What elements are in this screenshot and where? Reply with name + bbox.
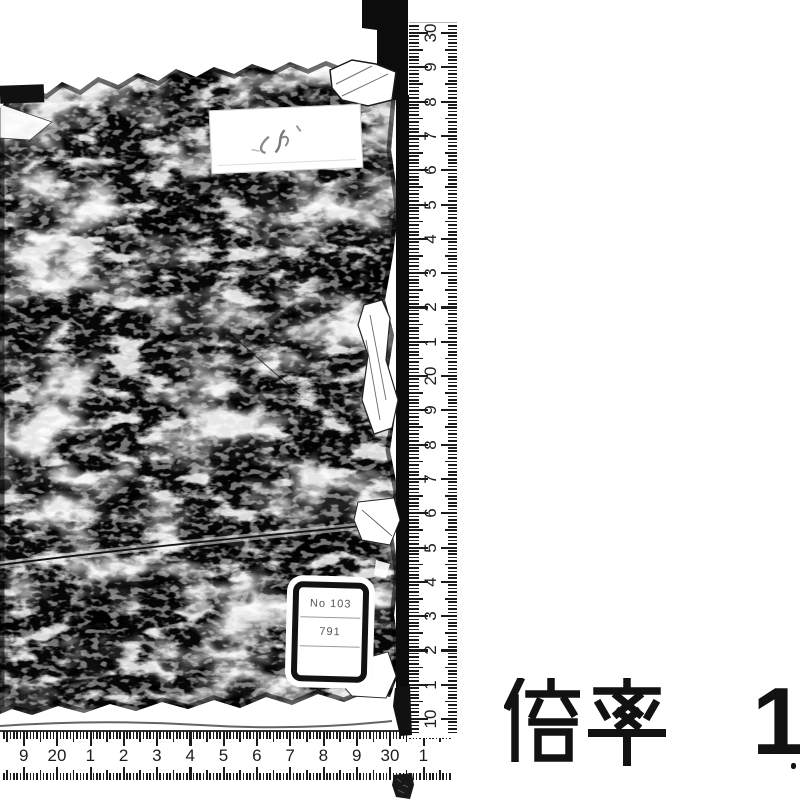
ruler-tick [448, 625, 457, 627]
ruler-tick [409, 553, 419, 555]
ruler-tick [409, 639, 419, 641]
ruler-tick [409, 571, 419, 573]
ruler-tick [56, 767, 58, 780]
ruler-tick [409, 53, 419, 55]
ruler-tick [409, 80, 419, 82]
ruler-tick [163, 773, 165, 780]
ruler-tick [448, 87, 457, 89]
ruler-tick [229, 773, 231, 780]
ruler-tick [193, 731, 195, 739]
ruler-tick [448, 73, 457, 75]
ruler-tick [448, 320, 457, 322]
ruler-tick [409, 557, 419, 559]
ruler-tick [409, 200, 419, 202]
ruler-tick [66, 773, 68, 780]
ruler-tick [86, 731, 88, 739]
ruler-tick [441, 306, 457, 308]
ruler-tick [36, 731, 38, 739]
ruler-tick [409, 560, 419, 562]
ruler-tick [448, 474, 457, 476]
ruler-number: 10 [421, 705, 441, 733]
ruler-tick [448, 402, 457, 404]
ruler-tick [153, 731, 155, 739]
ruler-tick [103, 731, 105, 739]
ruler-tick [442, 773, 444, 780]
ruler-number: 2 [421, 293, 441, 321]
ruler-tick [448, 128, 457, 130]
ruler-tick [448, 595, 457, 597]
ruler-tick [203, 731, 205, 739]
ruler-tick [409, 190, 419, 192]
ruler-tick [16, 731, 18, 739]
ruler-tick [448, 457, 457, 459]
ruler-tick [3, 773, 5, 780]
ruler-tick [409, 317, 419, 319]
ruler-tick [448, 715, 457, 717]
ruler-number: 1 [77, 746, 103, 766]
ruler-tick [333, 731, 335, 739]
ruler-tick [183, 731, 185, 739]
ruler-tick [448, 481, 457, 483]
ruler-tick [369, 773, 371, 780]
ruler-tick [409, 286, 419, 288]
ruler-tick [286, 731, 288, 739]
ruler-tick [70, 773, 72, 780]
ruler-tick [149, 773, 151, 780]
ruler-tick [448, 725, 457, 727]
ruler-number: 3 [421, 602, 441, 630]
ruler-tick [445, 598, 457, 600]
ruler-tick [448, 406, 457, 408]
ruler-tick [448, 454, 457, 456]
ruler-tick [441, 718, 457, 720]
ruler-tick [448, 464, 457, 466]
ruler-tick [263, 773, 265, 780]
ruler-tick [448, 567, 457, 569]
ruler-tick [448, 293, 457, 295]
ruler-tick [93, 773, 95, 780]
ruler-tick [409, 241, 419, 243]
ruler-tick [441, 581, 457, 583]
ruler-tick [409, 313, 419, 315]
ruler-tick [445, 152, 457, 154]
ruler-tick [276, 731, 278, 739]
ruler-tick [343, 731, 345, 739]
ruler-tick [448, 485, 457, 487]
ruler-tick [409, 365, 419, 367]
ruler-number: 30 [377, 746, 403, 766]
ruler-tick [409, 519, 419, 521]
ruler-tick [323, 767, 325, 780]
ruler-tick [76, 773, 78, 780]
ruler-tick [409, 577, 419, 579]
catalog-line-2: 791 [300, 618, 361, 648]
ruler-tick [448, 70, 457, 72]
ruler-tick [448, 176, 457, 178]
ruler-tick [90, 767, 92, 780]
ruler-tick [409, 471, 419, 473]
ruler-tick [40, 731, 42, 742]
ruler-tick [359, 773, 361, 780]
ruler-tick [409, 276, 419, 278]
ruler-tick [226, 773, 228, 780]
ruler-tick [109, 731, 111, 739]
catalog-sticker-frame: No 103 791 [291, 581, 370, 683]
ruler-tick [448, 673, 457, 675]
ruler-tick [409, 372, 419, 374]
ruler-tick [445, 461, 457, 463]
ruler-tick [223, 767, 225, 780]
ruler-tick [409, 385, 419, 387]
ruler-tick [349, 731, 351, 739]
ruler-tick [243, 773, 245, 780]
ruler-tick [329, 773, 331, 780]
ruler-tick [448, 310, 457, 312]
ruler-tick [256, 767, 258, 780]
ruler-tick [448, 584, 457, 586]
ruler-tick [26, 773, 28, 780]
ruler-tick [441, 375, 457, 377]
ruler-tick [316, 773, 318, 780]
ruler-tick [409, 176, 419, 178]
ruler-tick [186, 773, 188, 780]
ruler-tick [448, 505, 457, 507]
ruler-tick [323, 731, 325, 746]
ruler-tick [409, 59, 419, 61]
ruler-tick [448, 694, 457, 696]
ruler-tick [409, 673, 419, 675]
ruler-tick [303, 773, 305, 780]
ruler-tick [448, 296, 457, 298]
ruler-tick [3, 731, 5, 739]
ruler-tick [409, 488, 419, 490]
ruler-tick [306, 731, 308, 742]
ruler-tick [448, 365, 457, 367]
ruler-tick [169, 731, 171, 739]
ruler-tick [126, 731, 128, 739]
ruler-tick [259, 773, 261, 780]
ruler-tick [448, 224, 457, 226]
ruler-number: 7 [421, 122, 441, 150]
ruler-tick [445, 49, 457, 51]
ruler-tick [441, 512, 457, 514]
ruler-tick [448, 588, 457, 590]
ruler-number: 20 [421, 362, 441, 390]
ruler-tick [409, 296, 419, 298]
ruler-tick [30, 731, 32, 739]
ruler-tick [448, 691, 457, 693]
ruler-tick [448, 697, 457, 699]
ruler-tick [289, 767, 291, 780]
ruler-tick [448, 498, 457, 500]
ruler-tick [60, 773, 62, 780]
ruler-tick [119, 773, 121, 780]
ruler-tick [448, 276, 457, 278]
ruler-tick [448, 553, 457, 555]
ruler-tick [113, 773, 115, 780]
ruler-tick [173, 731, 175, 742]
ruler-tick [256, 731, 258, 746]
ruler-tick [448, 125, 457, 127]
ruler-tick [445, 701, 457, 703]
ruler-tick [236, 731, 238, 739]
ruler-tick [23, 731, 25, 746]
ruler-tick [409, 334, 419, 336]
ruler-tick [286, 773, 288, 780]
ruler-tick [409, 155, 419, 157]
ruler-tick [356, 767, 358, 780]
ruler-tick [10, 773, 12, 780]
ruler-tick [409, 522, 419, 524]
catalog-sticker: No 103 791 [287, 577, 374, 687]
ruler-tick [179, 773, 181, 780]
ruler-tick [409, 173, 419, 175]
ruler-tick [279, 773, 281, 780]
ruler-tick [99, 773, 101, 780]
ruler-tick [409, 399, 419, 401]
ruler-tick [448, 217, 457, 219]
ruler-tick [448, 368, 457, 370]
ruler-tick [441, 169, 457, 171]
ruler-tick [409, 505, 419, 507]
ruler-tick [76, 731, 78, 739]
ruler-tick [409, 128, 419, 130]
ruler-number: 6 [421, 499, 441, 527]
ruler-tick [46, 731, 48, 739]
ruler-tick [448, 413, 457, 415]
ruler-tick [448, 63, 457, 65]
ruler-tick [448, 629, 457, 631]
ruler-tick [448, 214, 457, 216]
ruler-tick [73, 770, 75, 780]
ruler-tick [129, 773, 131, 780]
ruler-tick [409, 87, 419, 89]
ruler-tick [373, 731, 375, 742]
ruler-tick [96, 773, 98, 780]
ruler-tick [409, 437, 419, 439]
ruler-tick [296, 773, 298, 780]
ruler-tick [448, 721, 457, 723]
ruler-tick [216, 773, 218, 780]
ruler-tick [448, 646, 457, 648]
ruler-tick [409, 49, 423, 51]
ruler-tick [409, 368, 419, 370]
ruler-tick [409, 564, 423, 566]
ruler-tick [33, 731, 35, 739]
ruler-tick [448, 389, 457, 391]
ruler-tick [409, 265, 419, 267]
ruler-tick [409, 221, 423, 223]
ruler-tick [409, 125, 419, 127]
ruler-tick [448, 708, 457, 710]
ruler-tick [409, 186, 423, 188]
ruler-tick [448, 577, 457, 579]
ruler-tick [50, 731, 52, 739]
ruler-tick [409, 389, 419, 391]
ruler-tick [409, 39, 419, 41]
ruler-tick [409, 228, 419, 230]
ruler-tick [448, 245, 457, 247]
ruler-tick [13, 731, 15, 739]
ruler-tick [448, 183, 457, 185]
ruler-tick [409, 337, 419, 339]
ruler-tick [409, 498, 419, 500]
ruler-tick [445, 632, 457, 634]
ruler-tick [409, 423, 419, 425]
ruler-tick [43, 773, 45, 780]
ruler-tick [448, 605, 457, 607]
ruler-tick [448, 382, 457, 384]
ruler-tick [448, 39, 457, 41]
ruler-tick [43, 731, 45, 739]
ruler-tick [36, 773, 38, 780]
ruler-tick [448, 656, 457, 658]
ruler-tick [409, 358, 423, 360]
ruler-tick [356, 731, 358, 746]
ruler-tick [448, 166, 457, 168]
ruler-tick [409, 636, 419, 638]
ruler-tick [409, 529, 423, 531]
ruler-tick [409, 90, 419, 92]
ruler-tick [276, 773, 278, 780]
ruler-tick [448, 29, 457, 31]
ruler-tick [409, 152, 423, 154]
ruler-tick [93, 731, 95, 739]
ruler-number: 7 [421, 465, 441, 493]
ruler-tick [409, 310, 419, 312]
ruler-tick [432, 773, 434, 780]
ruler-tick [409, 149, 419, 151]
ruler-tick [409, 605, 419, 607]
ruler-tick [409, 142, 419, 144]
ruler-tick [409, 670, 419, 672]
ruler-tick [409, 348, 419, 350]
ruler-tick [136, 773, 138, 780]
ruler-number: 9 [421, 396, 441, 424]
ruler-tick [448, 193, 457, 195]
ruler-number: 5 [211, 746, 237, 766]
ruler-number: 6 [244, 746, 270, 766]
ruler-tick [203, 773, 205, 780]
ruler-tick [448, 162, 457, 164]
ruler-tick [176, 773, 178, 780]
ruler-tick [6, 731, 8, 742]
ruler-tick [156, 767, 158, 780]
ruler-tick [293, 773, 295, 780]
ruler-tick [441, 101, 457, 103]
ruler-tick [445, 83, 457, 85]
ruler-tick [448, 149, 457, 151]
ruler-tick [409, 454, 419, 456]
ruler-number: 3 [144, 746, 170, 766]
ruler-tick [441, 238, 457, 240]
scan-page: 920123456789301 309876543212098765432110… [0, 0, 800, 800]
ruler-tick [448, 111, 457, 113]
ruler-tick [369, 731, 371, 739]
ink-speck [791, 763, 796, 769]
ruler-tick [156, 731, 158, 746]
ruler-tick [448, 344, 457, 346]
ruler-tick [326, 731, 328, 739]
ruler-tick [409, 416, 419, 418]
ruler-tick [439, 770, 441, 780]
ruler-tick [409, 300, 419, 302]
ruler-tick [366, 773, 368, 780]
ruler-tick [441, 341, 457, 343]
ruler-tick [213, 731, 215, 739]
ruler-tick [409, 293, 419, 295]
ruler-tick [448, 732, 457, 734]
ruler-tick [289, 731, 291, 746]
ruler-tick [169, 773, 171, 780]
ruler-tick [448, 378, 457, 380]
ruler-tick [448, 643, 457, 645]
ruler-tick [219, 731, 221, 739]
ruler-tick [448, 179, 457, 181]
ruler-tick [303, 731, 305, 739]
ruler-tick [409, 234, 419, 236]
ruler-tick [253, 773, 255, 780]
ruler-tick [409, 162, 419, 164]
ruler-tick [336, 731, 338, 739]
ruler-tick [448, 228, 457, 230]
ruler-tick [409, 474, 419, 476]
title-slip-label [209, 104, 364, 175]
ruler-tick [166, 731, 168, 739]
ruler-tick [383, 731, 385, 739]
ruler-tick [409, 413, 419, 415]
ruler-tick [219, 773, 221, 780]
ruler-tick [445, 392, 457, 394]
ruler-tick [113, 731, 115, 739]
ruler-tick [448, 687, 457, 689]
ruler-tick [409, 643, 419, 645]
ruler-tick [409, 269, 419, 271]
ruler-tick [409, 543, 419, 545]
ruler-tick [448, 361, 457, 363]
vertical-ruler: 309876543212098765432110 [409, 22, 457, 738]
ruler-tick [448, 536, 457, 538]
ruler-tick [326, 773, 328, 780]
ruler-tick [133, 773, 135, 780]
ruler-tick [441, 204, 457, 206]
ruler-tick [249, 731, 251, 739]
ruler-tick [409, 378, 419, 380]
ruler-tick [441, 272, 457, 274]
ruler-tick [409, 426, 423, 428]
ruler-tick [448, 471, 457, 473]
ruler-tick [448, 131, 457, 133]
ruler-tick [445, 221, 457, 223]
ruler-tick [409, 492, 419, 494]
ruler-tick [379, 731, 381, 739]
ruler-tick [448, 680, 457, 682]
ruler-tick [73, 731, 75, 742]
ruler-tick [409, 382, 419, 384]
ruler-tick [448, 509, 457, 511]
ruler-tick [448, 396, 457, 398]
ruler-tick [409, 612, 419, 614]
ruler-tick [448, 334, 457, 336]
ruler-tick [63, 731, 65, 739]
ruler-tick [445, 289, 457, 291]
ruler-number: 1 [421, 328, 441, 356]
ruler-tick [448, 519, 457, 521]
ruler-tick [183, 773, 185, 780]
ruler-tick [409, 258, 419, 260]
ruler-tick [409, 591, 419, 593]
ruler-tick [296, 731, 298, 739]
